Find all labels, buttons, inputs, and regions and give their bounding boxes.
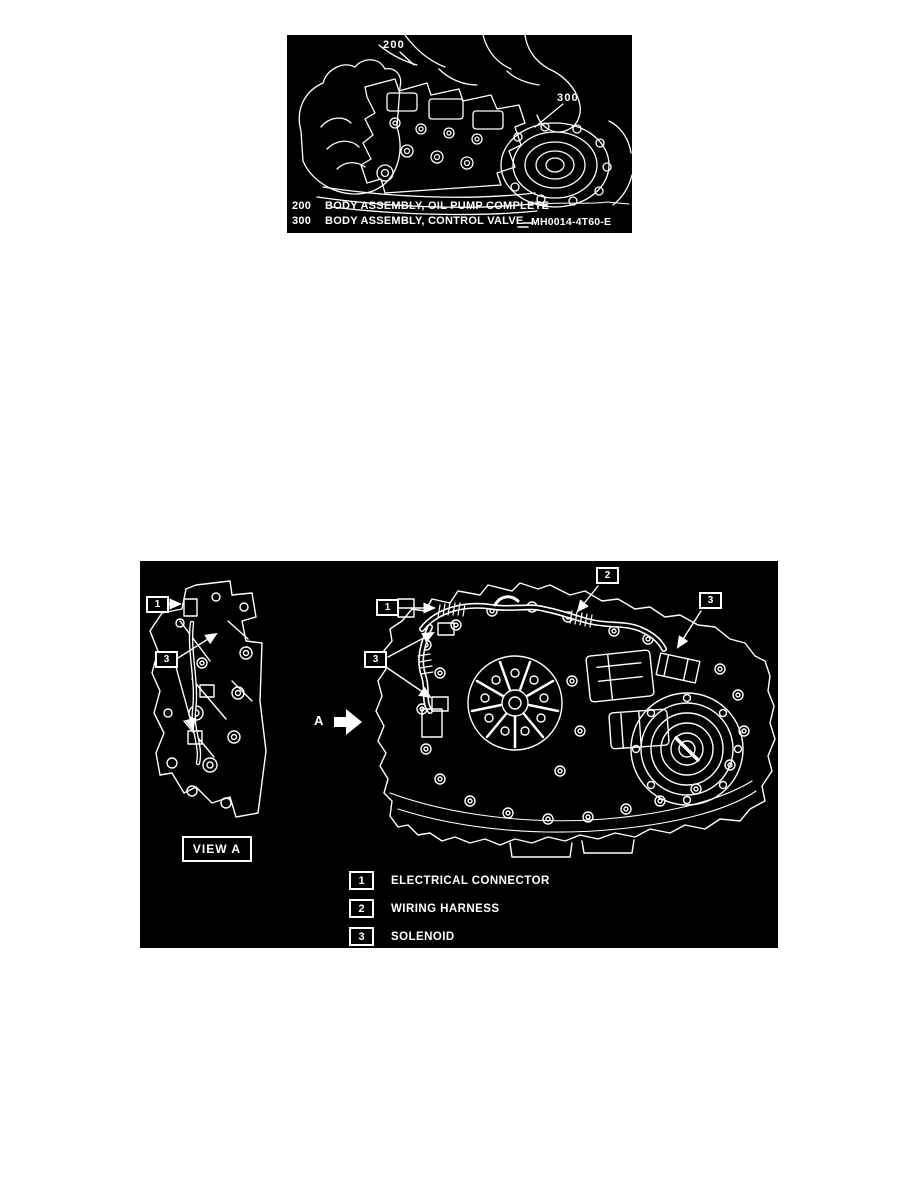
figure-solenoid-wiring-harness: 1 3 VIEW A A 1 2 3 3 1 ELECTRICAL CONNEC… (140, 561, 778, 948)
legend-ref-box-2: 2 (349, 899, 374, 918)
legend-row-electrical-connector: 1 ELECTRICAL CONNECTOR (349, 871, 550, 890)
callout-box-left-1: 1 (146, 596, 169, 613)
callout-number: 3 (373, 654, 379, 665)
callout-box-main-2: 2 (596, 567, 619, 584)
legend-row-solenoid: 3 SOLENOID (349, 927, 455, 946)
callout-box-left-3: 3 (155, 651, 178, 668)
callout-number: 3 (708, 595, 714, 606)
callout-box-main-3-right: 3 (699, 592, 722, 609)
legend-ref: 1 (358, 875, 364, 887)
view-a-label-box: VIEW A (182, 836, 252, 862)
callout-number: 3 (164, 654, 170, 665)
legend-label: ELECTRICAL CONNECTOR (391, 875, 550, 887)
legend-label: SOLENOID (391, 931, 455, 943)
figure-oil-pump-control-valve: 200 300 200 BODY ASSEMBLY, OIL PUMP COMP… (287, 35, 632, 233)
legend-ref-box-3: 3 (349, 927, 374, 946)
legend-ref: 2 (358, 903, 364, 915)
legend-ref-300: 300 (292, 215, 316, 228)
legend-label-200: BODY ASSEMBLY, OIL PUMP COMPLETE (325, 200, 549, 213)
figure1-legend-row-200: 200 BODY ASSEMBLY, OIL PUMP COMPLETE (292, 200, 549, 213)
manual-page: { "colors": { "page_bg": "#ffffff", "fig… (0, 0, 918, 1188)
legend-label: WIRING HARNESS (391, 903, 500, 915)
figure1-legend-row-300: 300 BODY ASSEMBLY, CONTROL VALVE (292, 215, 524, 228)
callout-box-main-1: 1 (376, 599, 399, 616)
callout-number: 1 (385, 602, 391, 613)
figure-code: MH0014-4T60-E (531, 216, 611, 228)
callout-number: 1 (155, 599, 161, 610)
legend-ref-200: 200 (292, 200, 316, 213)
callout-label-200: 200 (383, 39, 405, 51)
callout-number: 2 (605, 570, 611, 581)
legend-row-wiring-harness: 2 WIRING HARNESS (349, 899, 500, 918)
legend-ref: 3 (358, 931, 364, 943)
legend-ref-box-1: 1 (349, 871, 374, 890)
detail-arrow-label: A (314, 712, 323, 730)
callout-label-300: 300 (557, 92, 579, 104)
callout-box-main-3-left: 3 (364, 651, 387, 668)
legend-label-300: BODY ASSEMBLY, CONTROL VALVE (325, 215, 524, 228)
view-a-label: VIEW A (193, 842, 241, 856)
